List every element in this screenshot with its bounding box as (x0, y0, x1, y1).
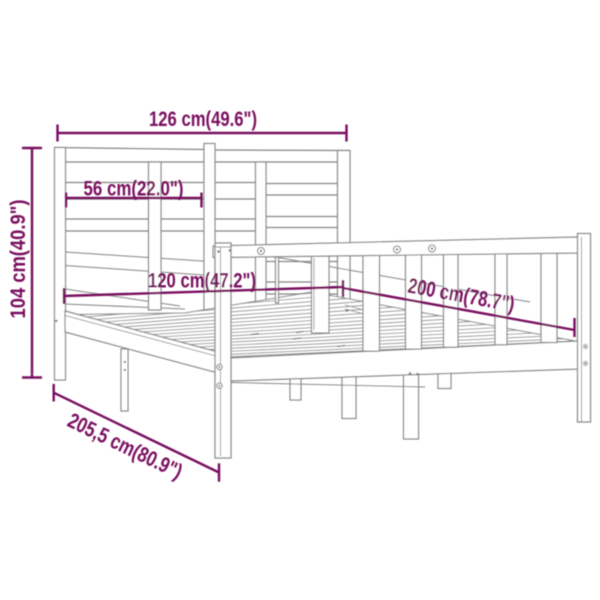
svg-text:126 cm(49.6"): 126 cm(49.6") (149, 107, 257, 131)
svg-text:104 cm(40.9"): 104 cm(40.9") (6, 200, 30, 319)
svg-text:56 cm(22.0"): 56 cm(22.0") (84, 177, 184, 201)
svg-text:120 cm(47.2"): 120 cm(47.2") (148, 269, 256, 293)
